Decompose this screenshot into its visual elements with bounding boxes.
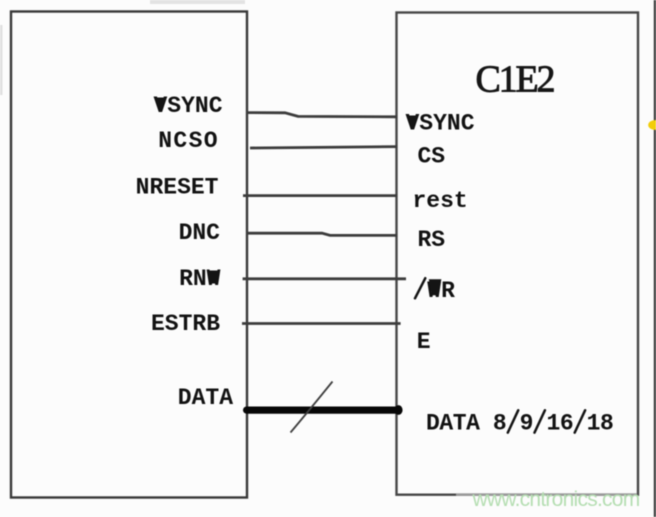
- svg-text:CS: CS: [418, 143, 446, 169]
- svg-text:C1E2: C1E2: [476, 59, 554, 101]
- svg-text:RS: RS: [418, 227, 446, 253]
- svg-text:DATA 8 9 16 18: DATA 8 9 16 18: [426, 411, 613, 437]
- svg-text:E: E: [417, 329, 431, 355]
- svg-text:rest: rest: [413, 188, 468, 214]
- svg-text:NCSO: NCSO: [158, 128, 219, 154]
- svg-text:www.cntronics.com: www.cntronics.com: [472, 488, 640, 511]
- svg-text:VSYNC: VSYNC: [406, 111, 475, 137]
- svg-text:VSYNC: VSYNC: [153, 93, 222, 119]
- svg-text:DATA: DATA: [178, 385, 233, 411]
- svg-text:DNC: DNC: [179, 220, 221, 246]
- svg-text:NRESET: NRESET: [136, 175, 219, 201]
- svg-text:ESTRB: ESTRB: [151, 311, 220, 337]
